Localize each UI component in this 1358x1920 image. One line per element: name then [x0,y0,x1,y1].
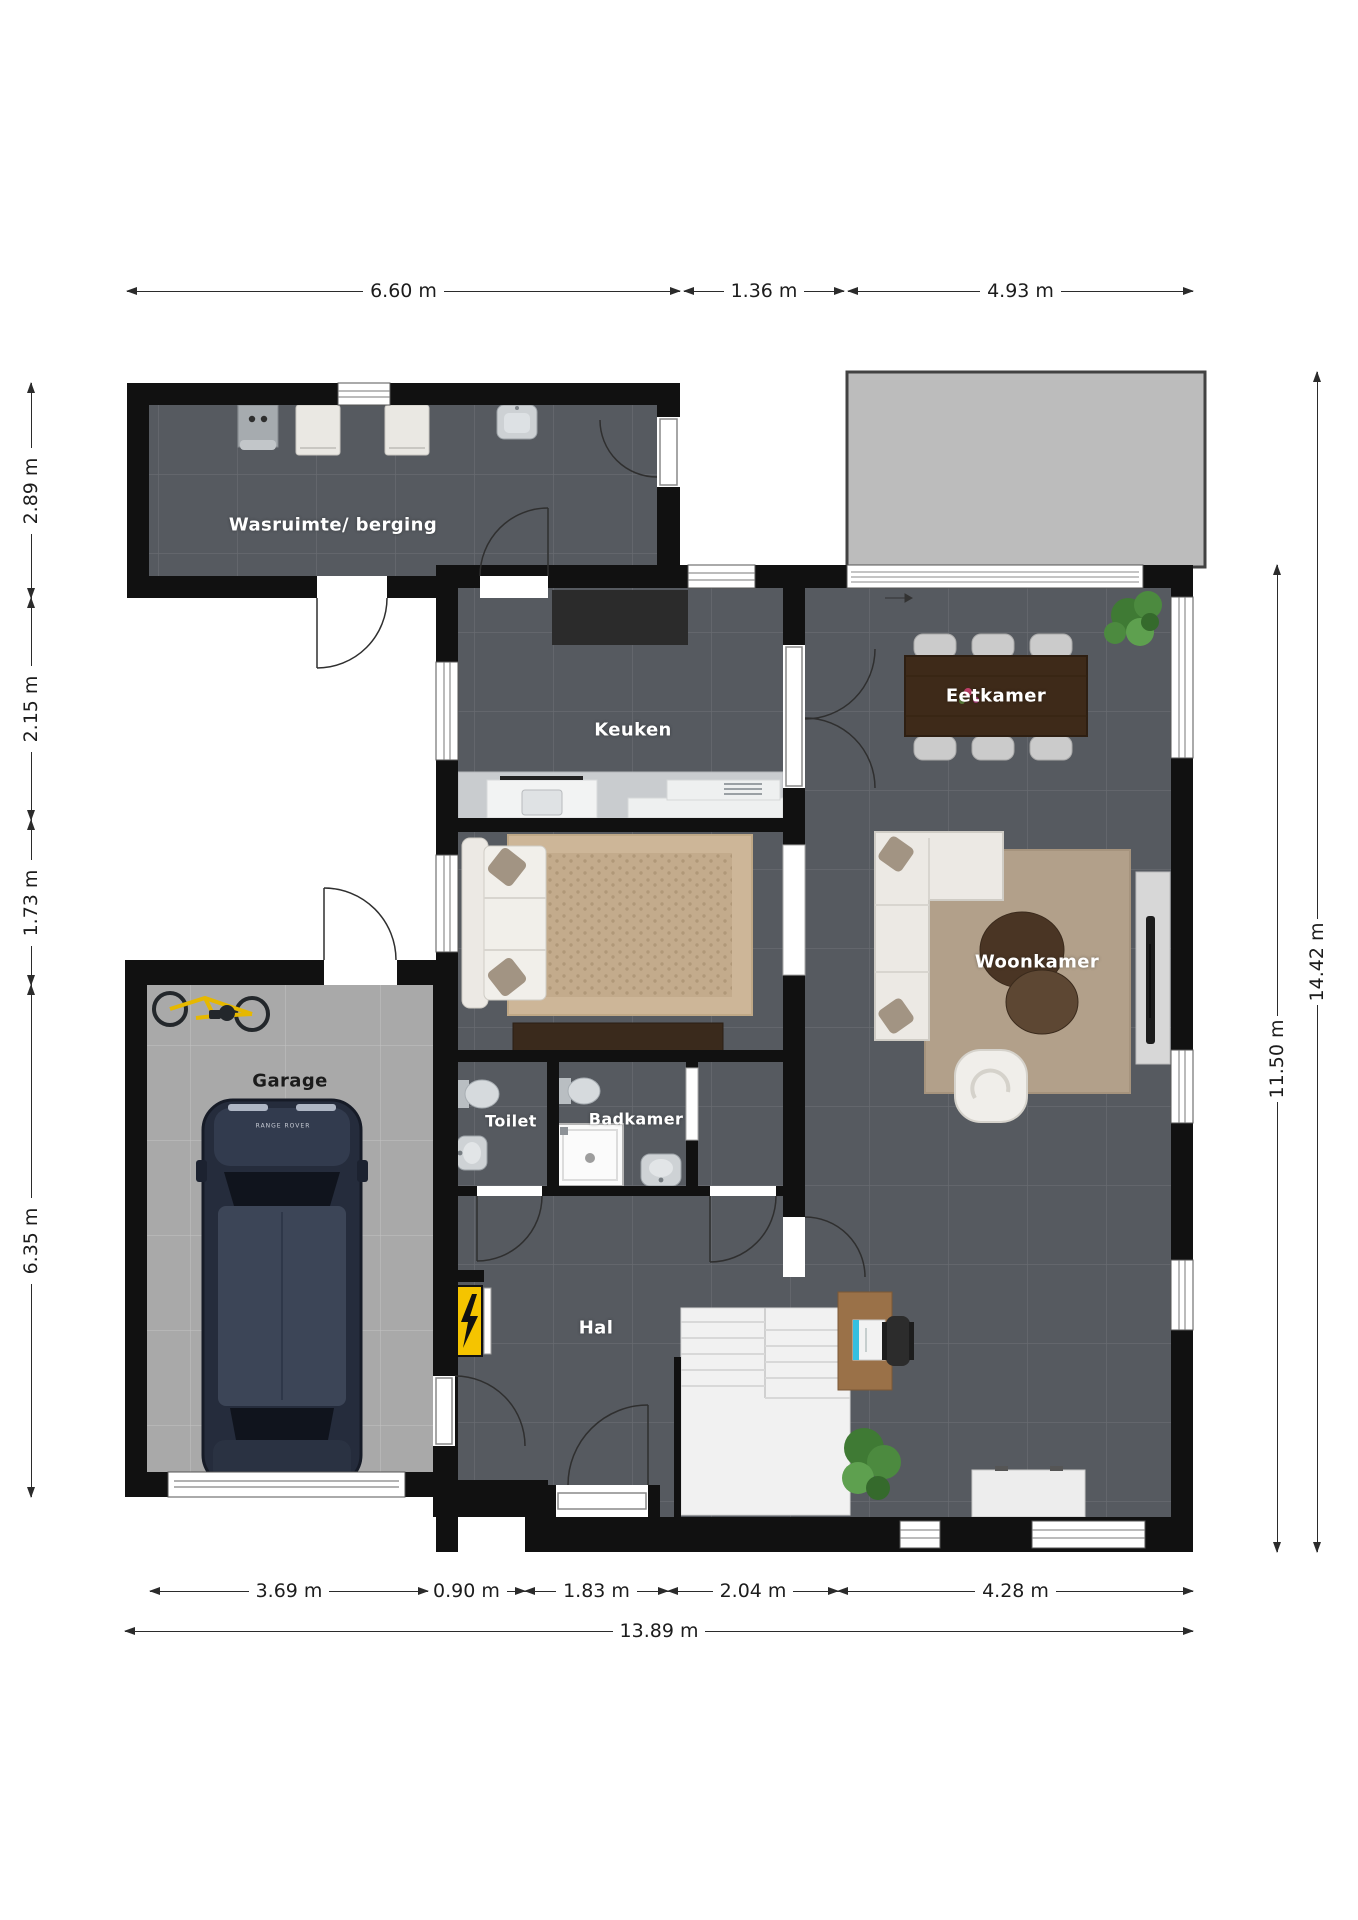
garage-door [168,1472,405,1497]
room-label-hal: Hal [579,1318,614,1339]
dim-bottom-183: 1.83 m [525,1582,668,1600]
window [436,855,458,952]
window [338,383,390,405]
room-label-woonkamer: Woonkamer [975,952,1099,973]
dim-top-493: 4.93 m [848,282,1193,300]
tv-cabinet [1136,872,1170,1064]
room-label-keuken: Keuken [594,720,672,741]
window [1032,1521,1145,1548]
kitchen-cooktop-block [552,590,688,645]
dim-bottom-204: 2.04 m [668,1582,838,1600]
window [900,1521,940,1548]
dim-bottom-428: 4.28 m [838,1582,1193,1600]
shower [557,1124,623,1186]
armchair [955,1050,1027,1122]
car [196,1100,368,1485]
bathroom-sink-icon [641,1154,681,1186]
sideboard-bottom [972,1466,1085,1517]
dim-left-173: 1.73 m [16,820,46,985]
lounge-sofa [462,838,546,1008]
window [688,565,755,588]
room-label-toilet: Toilet [485,1112,537,1131]
window [436,662,458,760]
car-badge: RANGE ROVER [256,1123,311,1130]
boiler-icon [238,405,278,450]
utility-sink-icon [497,405,537,439]
room-label-garage: Garage [252,1071,327,1092]
dryer-icon [385,405,429,455]
dim-total-width: 13.89 m [125,1622,1193,1640]
electrical-panel-icon [456,1286,491,1356]
dim-left-635: 6.35 m [16,985,46,1497]
window [1171,597,1193,758]
floor-plan-page: Wasruimte/ berging Keuken Eetkamer Woonk… [0,0,1358,1920]
window [1171,1050,1193,1123]
washing-machine-icon [296,405,340,455]
kitchen-counter [458,772,783,820]
dim-right-1150: 11.50 m [1262,565,1292,1552]
dim-bottom-369: 3.69 m [150,1582,428,1600]
dim-top-136: 1.36 m [684,282,844,300]
toilet-sink-icon [457,1136,487,1170]
dim-left-215: 2.15 m [16,598,46,820]
toilet-icon [455,1080,499,1108]
dim-bottom-090: 0.90 m [433,1582,525,1600]
terrace [847,372,1205,567]
pocket-opening [783,845,805,975]
room-label-eetkamer: Eetkamer [946,686,1046,707]
bathroom-toilet-icon [557,1078,600,1104]
desk-chair [882,1316,914,1366]
dim-right-1442: 14.42 m [1302,372,1332,1552]
dim-top-660: 6.60 m [127,282,680,300]
dim-left-289: 2.89 m [16,383,46,598]
room-label-wasruimte: Wasruimte/ berging [229,515,437,536]
room-label-badkamer: Badkamer [589,1110,684,1129]
stairs [681,1308,850,1515]
window [1171,1260,1193,1330]
pocket-opening [686,1068,698,1140]
